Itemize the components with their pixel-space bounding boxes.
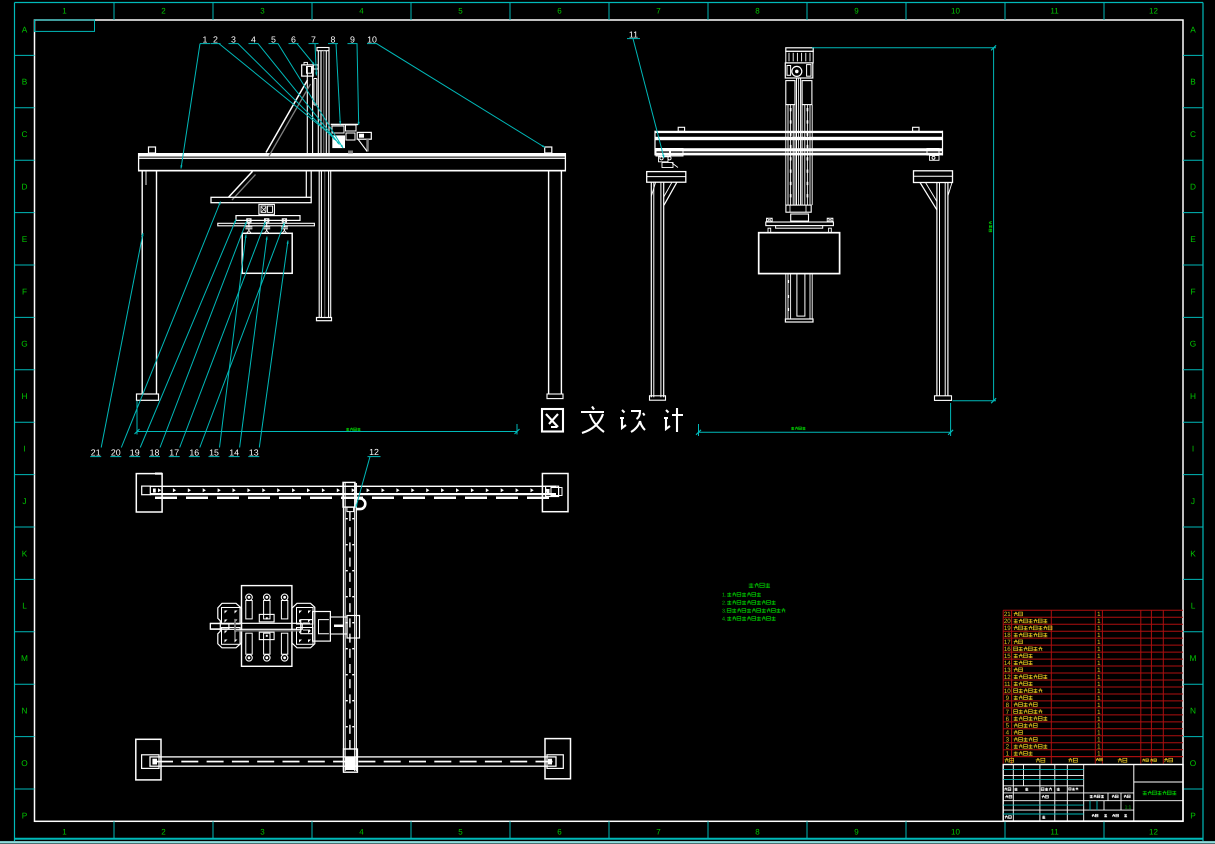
svg-text:16: 16 <box>1004 646 1011 653</box>
svg-text:I: I <box>23 444 25 454</box>
svg-text:1: 1 <box>1097 695 1101 702</box>
svg-text:1: 1 <box>1097 625 1101 632</box>
svg-text:12: 12 <box>1149 7 1158 16</box>
svg-text:1: 1 <box>1097 653 1101 660</box>
svg-text:5: 5 <box>1006 723 1010 730</box>
svg-text:C: C <box>1190 129 1196 139</box>
svg-text:E: E <box>22 234 28 244</box>
svg-text:11: 11 <box>1050 828 1059 837</box>
svg-text:4: 4 <box>359 7 364 16</box>
svg-text:N: N <box>22 706 28 716</box>
svg-text:21: 21 <box>1004 611 1011 618</box>
svg-text:A: A <box>1190 24 1196 34</box>
svg-text:17: 17 <box>1004 639 1011 646</box>
svg-text:M: M <box>1190 653 1197 663</box>
svg-text:J: J <box>22 496 26 506</box>
svg-text:1.: 1. <box>722 593 727 599</box>
svg-text:13: 13 <box>1004 667 1011 674</box>
svg-text:8: 8 <box>1006 702 1010 709</box>
svg-text:H: H <box>1190 391 1196 401</box>
svg-text:9: 9 <box>1006 695 1010 702</box>
svg-text:3: 3 <box>1006 737 1010 744</box>
svg-text:20: 20 <box>111 448 121 458</box>
svg-text:C: C <box>22 129 28 139</box>
svg-text:6: 6 <box>1006 716 1010 723</box>
svg-text:21: 21 <box>91 448 101 458</box>
svg-text:8: 8 <box>755 7 760 16</box>
svg-text:D: D <box>1190 182 1196 192</box>
svg-text:6: 6 <box>557 828 562 837</box>
svg-text:1: 1 <box>1097 723 1101 730</box>
svg-text:1: 1 <box>62 828 67 837</box>
svg-text:11: 11 <box>1004 681 1011 688</box>
svg-text:B: B <box>1190 77 1196 87</box>
svg-text:B: B <box>22 77 28 87</box>
svg-text:2: 2 <box>1006 744 1010 751</box>
svg-text:P: P <box>1190 810 1196 820</box>
svg-text:O: O <box>1190 758 1197 768</box>
svg-text:P: P <box>22 810 28 820</box>
svg-text:16: 16 <box>189 448 199 458</box>
svg-text:15: 15 <box>209 448 219 458</box>
svg-text:15: 15 <box>1004 653 1011 660</box>
svg-text:1: 1 <box>1006 751 1010 758</box>
svg-text:G: G <box>1190 339 1196 349</box>
svg-text:D: D <box>22 182 28 192</box>
svg-text:3: 3 <box>260 7 265 16</box>
svg-text:2.: 2. <box>722 601 727 607</box>
svg-text:1: 1 <box>62 7 67 16</box>
svg-text:1: 1 <box>1097 618 1101 625</box>
svg-text:12: 12 <box>369 447 379 457</box>
svg-text:F: F <box>1190 286 1195 296</box>
svg-text:7: 7 <box>1006 709 1010 716</box>
svg-text:8: 8 <box>755 828 760 837</box>
svg-text:5: 5 <box>458 7 463 16</box>
svg-text:1: 1 <box>1097 660 1101 667</box>
svg-text:A: A <box>22 24 28 34</box>
svg-text:14: 14 <box>229 448 239 458</box>
svg-text:6: 6 <box>557 7 562 16</box>
svg-text:11: 11 <box>629 29 638 39</box>
svg-text:E: E <box>1190 234 1196 244</box>
svg-text:H: H <box>22 391 28 401</box>
svg-text:3.: 3. <box>722 609 727 615</box>
svg-text:1: 1 <box>1097 688 1101 695</box>
svg-text:10: 10 <box>1004 688 1011 695</box>
svg-text:19: 19 <box>1004 625 1011 632</box>
svg-text:O: O <box>21 758 28 768</box>
svg-text:7: 7 <box>656 7 661 16</box>
svg-text:12: 12 <box>1149 828 1158 837</box>
svg-text:I: I <box>1192 444 1194 454</box>
svg-text:J: J <box>1191 496 1195 506</box>
svg-text:14: 14 <box>1004 660 1011 667</box>
svg-text:G: G <box>21 339 27 349</box>
svg-text:4: 4 <box>359 828 364 837</box>
svg-text:M: M <box>21 653 28 663</box>
svg-text:4: 4 <box>1006 730 1010 737</box>
svg-text:1: 1 <box>1097 639 1101 646</box>
svg-text:1: 1 <box>1097 751 1101 758</box>
svg-text:2: 2 <box>161 7 166 16</box>
svg-text:18: 18 <box>150 448 160 458</box>
svg-text:1: 1 <box>1097 702 1101 709</box>
svg-text:1: 1 <box>1097 737 1101 744</box>
svg-text:19: 19 <box>130 448 140 458</box>
svg-text:1: 1 <box>1097 611 1101 618</box>
svg-text:3: 3 <box>260 828 265 837</box>
svg-text:7: 7 <box>656 828 661 837</box>
svg-text:1: 1 <box>1097 744 1101 751</box>
svg-text:1: 1 <box>1097 646 1101 653</box>
svg-text:10: 10 <box>951 7 960 16</box>
svg-text:17: 17 <box>169 448 179 458</box>
svg-text:9: 9 <box>854 7 859 16</box>
svg-text:L: L <box>1191 601 1196 611</box>
svg-text:11: 11 <box>1050 7 1059 16</box>
svg-text:1: 1 <box>1097 667 1101 674</box>
svg-text:1: 1 <box>1097 632 1101 639</box>
svg-text:K: K <box>1190 548 1196 558</box>
svg-text:18: 18 <box>1004 632 1011 639</box>
svg-text:4.: 4. <box>722 617 727 623</box>
svg-text:1:1: 1:1 <box>1125 805 1132 810</box>
svg-text:12: 12 <box>1004 674 1011 681</box>
svg-text:5: 5 <box>458 828 463 837</box>
svg-text:1: 1 <box>1097 709 1101 716</box>
svg-text:2: 2 <box>161 828 166 837</box>
svg-text:1: 1 <box>1097 674 1101 681</box>
svg-text:1: 1 <box>1097 716 1101 723</box>
svg-text:K: K <box>22 548 28 558</box>
svg-text:13: 13 <box>249 448 259 458</box>
svg-text:10: 10 <box>951 828 960 837</box>
svg-text:N: N <box>1190 706 1196 716</box>
svg-text:1: 1 <box>1097 681 1101 688</box>
svg-text:F: F <box>22 286 27 296</box>
svg-text:9: 9 <box>854 828 859 837</box>
svg-text:20: 20 <box>1004 618 1011 625</box>
svg-text:1: 1 <box>1097 730 1101 737</box>
svg-text:L: L <box>22 601 27 611</box>
